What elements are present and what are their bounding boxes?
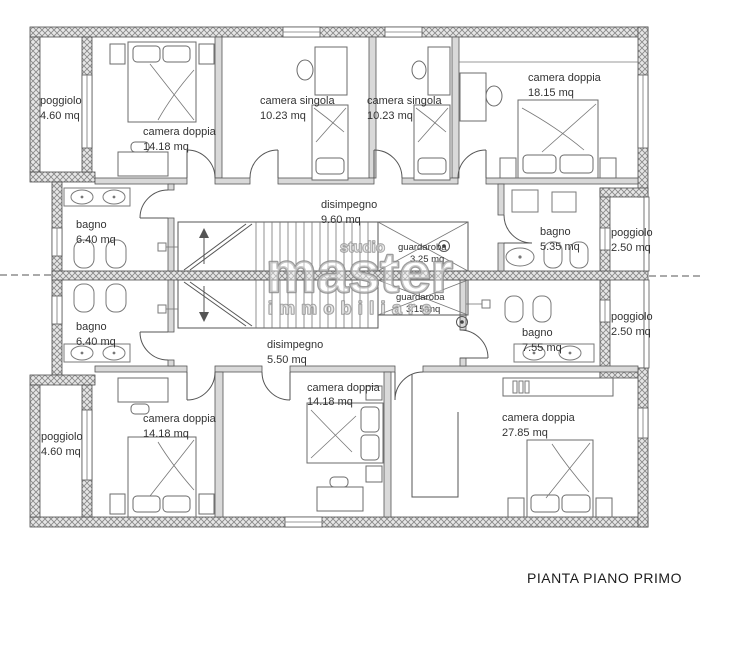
room-label: poggiolo [40, 95, 82, 107]
toilet [505, 296, 523, 322]
chair [486, 86, 502, 106]
pillow [316, 158, 344, 174]
nightstand [596, 498, 612, 517]
pillow [163, 46, 190, 62]
room-area: 10.23 mq [367, 110, 413, 122]
watermark-logo: studio master immobiliare [266, 239, 453, 318]
room-label: camera doppia [143, 413, 217, 425]
room-area: 18.15 mq [528, 87, 574, 99]
bidet [533, 296, 551, 322]
nightstand [199, 494, 214, 514]
room-area: 4.60 mq [40, 110, 80, 122]
room-area: 7.55 mq [522, 342, 562, 354]
toilet [74, 284, 94, 312]
bedroom-top-left-furniture [110, 42, 214, 176]
pillow [418, 158, 446, 174]
chair [330, 477, 348, 487]
room-label: poggiolo [41, 431, 83, 443]
plan-title: PIANTA PIANO PRIMO [527, 570, 682, 586]
room-label: camera singola [260, 95, 335, 107]
pillow [133, 46, 160, 62]
room-area: 5.50 mq [267, 354, 307, 366]
room-area: 14.18 mq [143, 141, 189, 153]
desk [118, 152, 168, 176]
room-label: bagno [522, 327, 553, 339]
room-label: disimpegno [321, 199, 377, 211]
room-label: bagno [540, 226, 571, 238]
watermark-immobiliare: immobiliare [268, 298, 438, 318]
room-label: poggiolo [611, 227, 653, 239]
pillow [133, 496, 160, 512]
pillow [361, 407, 379, 432]
room-label: camera singola [367, 95, 442, 107]
washer [552, 192, 576, 212]
nightstand [199, 44, 214, 64]
room-label: camera doppia [528, 72, 602, 84]
nightstand [110, 44, 125, 64]
desk [460, 73, 486, 121]
room-area: 10.23 mq [260, 110, 306, 122]
nightstand [110, 494, 125, 514]
pillow [163, 496, 190, 512]
nightstand [508, 498, 524, 517]
room-area: 9.60 mq [321, 214, 361, 226]
room-area: 2.50 mq [611, 242, 651, 254]
pillow [560, 155, 593, 173]
pillow [361, 435, 379, 460]
pillow [531, 495, 559, 512]
nightstand [500, 158, 516, 178]
watermark-master: master [266, 241, 453, 305]
room-area: 4.60 mq [41, 446, 81, 458]
room-area: 27.85 mq [502, 427, 548, 439]
room-label: camera doppia [143, 126, 217, 138]
nightstand [600, 158, 616, 178]
bidet [106, 284, 126, 312]
shower [512, 190, 538, 212]
bedroom-bottom-left-furniture [110, 378, 214, 517]
floor-plan-drawing: poggiolo 4.60 mq camera doppia 14.18 mq … [0, 0, 745, 650]
chair [297, 60, 313, 80]
room-area: 5.35 mq [540, 241, 580, 253]
desk [118, 378, 168, 402]
room-label: disimpegno [267, 339, 323, 351]
bedroom-2785-furniture [503, 378, 613, 517]
room-label: bagno [76, 321, 107, 333]
room-label: camera doppia [502, 412, 576, 424]
room-area: 6.40 mq [76, 234, 116, 246]
room-label: camera doppia [307, 382, 381, 394]
balcony-parapets [644, 197, 649, 368]
desk [317, 487, 363, 511]
desk [428, 47, 450, 95]
pillow [562, 495, 590, 512]
room-area: 2.50 mq [611, 326, 651, 338]
floor-plan-page: poggiolo 4.60 mq camera doppia 14.18 mq … [0, 0, 745, 650]
nightstand [366, 466, 382, 482]
room-label: poggiolo [611, 311, 653, 323]
room-area: 6.40 mq [76, 336, 116, 348]
desk [315, 47, 347, 95]
room-area: 14.18 mq [307, 396, 353, 408]
bedroom-singola2-furniture [412, 47, 450, 180]
room-label: bagno [76, 219, 107, 231]
room-area: 14.18 mq [143, 428, 189, 440]
pillow [523, 155, 556, 173]
chair [412, 61, 426, 79]
